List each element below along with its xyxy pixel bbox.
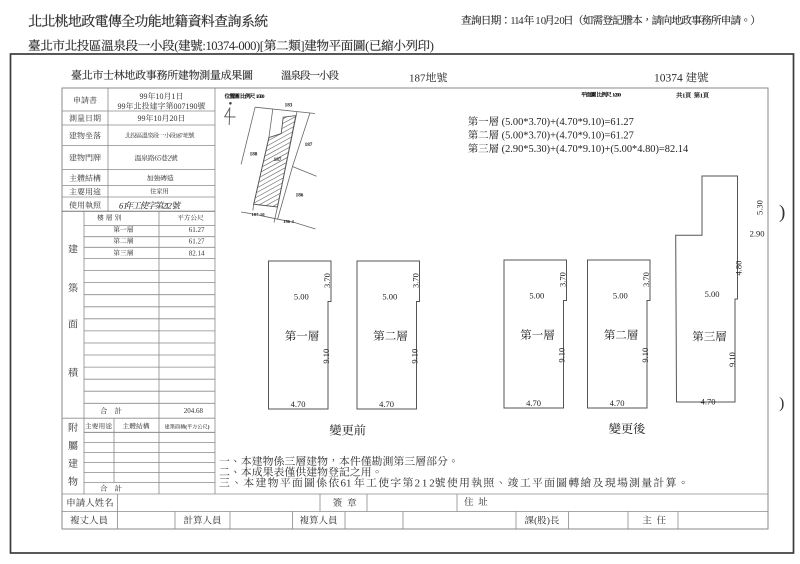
svg-text:5.30: 5.30 xyxy=(755,200,765,215)
svg-text:1: 1 xyxy=(172,92,176,101)
svg-text:5.00: 5.00 xyxy=(294,292,309,302)
svg-text:114: 114 xyxy=(510,15,524,27)
svg-text:]: ] xyxy=(300,39,304,53)
svg-text:1/500: 1/500 xyxy=(256,94,265,100)
svg-text:5.00: 5.00 xyxy=(613,291,628,301)
svg-text:(: ( xyxy=(534,516,537,527)
svg-text:5.00: 5.00 xyxy=(705,289,720,299)
svg-text:186: 186 xyxy=(296,193,304,199)
svg-text:4.70: 4.70 xyxy=(291,399,306,409)
svg-text:4.70: 4.70 xyxy=(610,398,625,408)
svg-text:5.00: 5.00 xyxy=(382,292,397,302)
svg-text:4.70: 4.70 xyxy=(379,399,394,409)
svg-text:1/200: 1/200 xyxy=(612,93,621,99)
svg-text:): ) xyxy=(430,39,434,53)
svg-text:5.00: 5.00 xyxy=(529,291,544,301)
svg-text:(: ( xyxy=(185,424,187,431)
svg-text:9.10: 9.10 xyxy=(321,349,331,364)
svg-text:9.10: 9.10 xyxy=(556,348,566,363)
svg-text:): ) xyxy=(779,202,785,223)
svg-text:61.27: 61.27 xyxy=(189,226,205,234)
svg-text:1: 1 xyxy=(700,93,703,100)
svg-text:2: 2 xyxy=(168,154,172,162)
svg-text:20: 20 xyxy=(554,15,565,27)
svg-text:(5.00*3.70)+(4.70*9.10)=61.27: (5.00*3.70)+(4.70*9.10)=61.27 xyxy=(502,117,634,128)
svg-text:3.70: 3.70 xyxy=(558,272,568,287)
svg-text:99: 99 xyxy=(140,92,148,101)
svg-text:): ) xyxy=(547,516,550,527)
svg-text:10: 10 xyxy=(154,114,162,123)
svg-text:61: 61 xyxy=(341,478,352,490)
svg-text:3.70: 3.70 xyxy=(411,273,421,288)
svg-text:1: 1 xyxy=(682,93,685,100)
svg-text:): ) xyxy=(208,424,210,431)
svg-text:186-4: 186-4 xyxy=(283,219,294,224)
svg-text:4.70: 4.70 xyxy=(526,398,541,408)
svg-text:(: ( xyxy=(174,39,178,53)
svg-text:10: 10 xyxy=(156,92,164,101)
svg-text:3.70: 3.70 xyxy=(322,273,332,288)
svg-text:187: 187 xyxy=(305,142,313,148)
svg-text:187: 187 xyxy=(409,73,426,85)
svg-text:4.70: 4.70 xyxy=(701,397,716,407)
svg-text:20: 20 xyxy=(170,114,178,123)
svg-text:(2.90*5.30)+(4.70*9.10)+(5.00*: (2.90*5.30)+(4.70*9.10)+(5.00*4.80)=82.1… xyxy=(502,144,689,155)
svg-text:187-10: 187-10 xyxy=(251,212,265,217)
svg-text::10374-000)[: :10374-000)[ xyxy=(202,39,264,53)
svg-text:187: 187 xyxy=(274,157,282,163)
svg-text:99: 99 xyxy=(138,114,146,123)
svg-text:4.80: 4.80 xyxy=(734,261,744,276)
svg-text:(: ( xyxy=(365,39,369,53)
svg-text:187: 187 xyxy=(175,133,183,140)
svg-text:188: 188 xyxy=(250,152,258,158)
svg-text:9.10: 9.10 xyxy=(727,352,737,367)
svg-text:212: 212 xyxy=(415,478,435,490)
svg-text:65: 65 xyxy=(155,154,163,162)
svg-text:204.68: 204.68 xyxy=(184,407,204,415)
svg-text:2.90: 2.90 xyxy=(750,229,765,239)
svg-text:61.27: 61.27 xyxy=(189,237,205,245)
svg-text:3.70: 3.70 xyxy=(641,272,651,287)
svg-text:(5.00*3.70)+(4.70*9.10)=61.27: (5.00*3.70)+(4.70*9.10)=61.27 xyxy=(502,131,634,142)
svg-text:): ) xyxy=(779,395,784,412)
svg-text:007190: 007190 xyxy=(174,102,198,111)
svg-text:82.14: 82.14 xyxy=(189,249,205,257)
svg-text:10374: 10374 xyxy=(654,73,683,85)
svg-text:10: 10 xyxy=(535,15,546,27)
svg-text:9.10: 9.10 xyxy=(409,349,419,364)
svg-text:183: 183 xyxy=(285,103,293,109)
svg-text:99: 99 xyxy=(118,102,126,111)
svg-text:9.10: 9.10 xyxy=(640,348,650,363)
